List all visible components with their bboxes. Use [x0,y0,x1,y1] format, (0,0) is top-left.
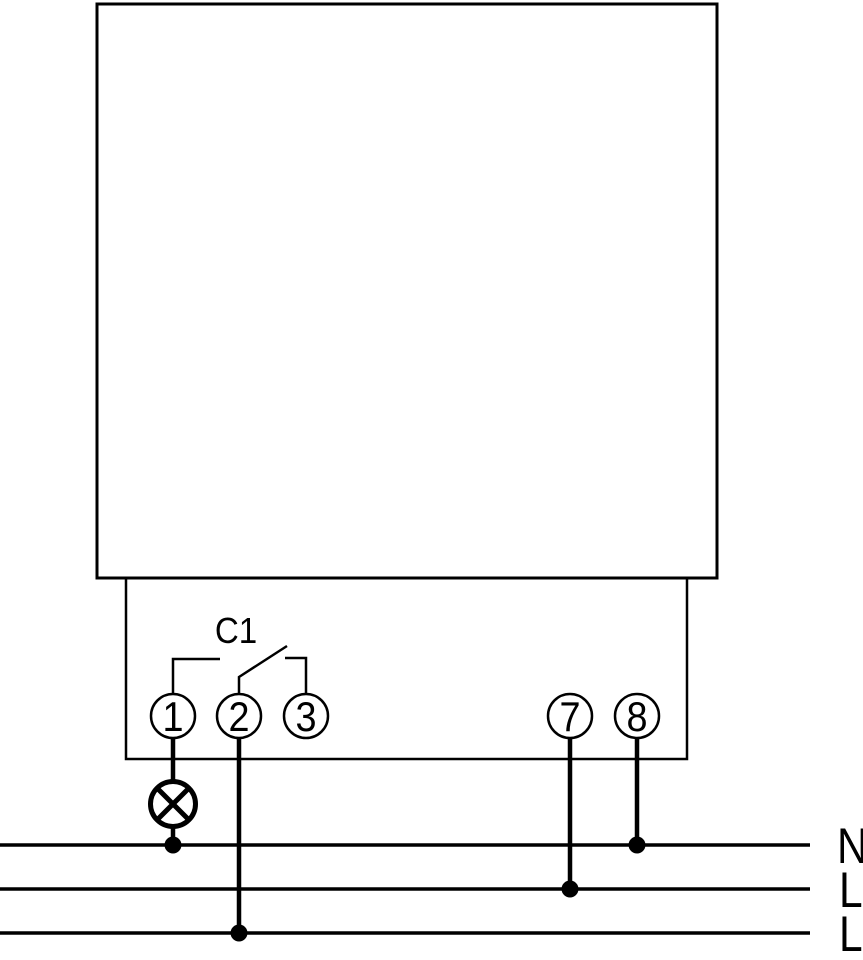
terminal-7-label: 7 [559,694,580,740]
contact-blade [239,646,287,694]
terminal-1-label: 1 [162,694,183,740]
wiring-diagram: C1 1 2 [0,0,863,960]
bus-label-phase-2: L [839,906,863,960]
contact-fixed-left [173,659,220,694]
channel-label: C1 [215,612,257,652]
junction-dot-terminal8-neutral [629,837,646,854]
terminal-3-label: 3 [295,694,316,740]
lamp-icon [151,782,196,827]
terminal-2-label: 2 [228,694,249,740]
contact-fixed-right [285,658,306,694]
device-outline [97,4,717,578]
junction-dot-terminal2-phase2 [231,925,248,942]
junction-dot-terminal7-phase1 [562,881,579,898]
terminal-3: 3 [284,694,328,740]
terminal-7: 7 [548,694,592,740]
wiring-diagram-canvas: C1 1 2 [0,0,863,960]
terminal-8-label: 8 [626,694,647,740]
terminal-1: 1 [151,694,195,740]
terminal-block-outline [126,578,687,759]
junction-dot-lamp-neutral [165,837,182,854]
terminal-8: 8 [615,694,659,740]
terminal-2: 2 [217,694,261,740]
relay-contact-c1: C1 [173,612,306,694]
